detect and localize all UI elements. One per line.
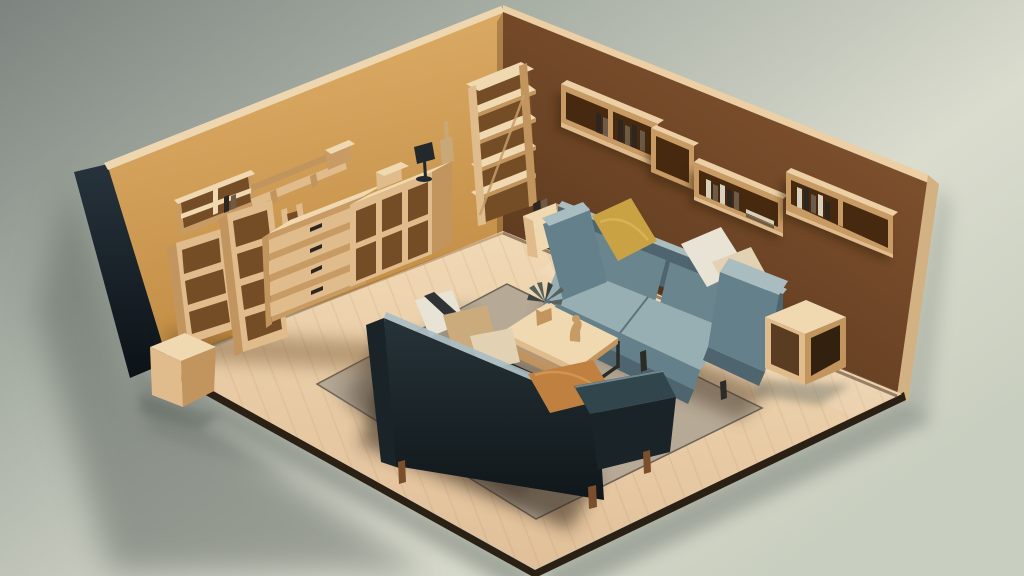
shelf-divider xyxy=(838,199,843,227)
isometric-living-room-render xyxy=(0,0,1024,576)
scene-canvas xyxy=(0,0,1024,576)
book-spine xyxy=(706,179,711,199)
book-spine xyxy=(618,119,623,143)
book-spine xyxy=(632,124,637,149)
sofa-leg xyxy=(720,380,727,400)
lamp-base xyxy=(416,176,432,182)
shelf-divider xyxy=(608,107,613,139)
cube-unit-side xyxy=(432,161,452,254)
book-spine xyxy=(804,187,809,211)
book-spine xyxy=(734,191,739,211)
book-spine xyxy=(596,112,601,134)
book-spine xyxy=(811,194,816,214)
book-spine xyxy=(231,194,236,210)
book-spine xyxy=(640,130,645,152)
book-spine xyxy=(797,187,802,209)
sofa-leg xyxy=(398,460,406,484)
book-spine xyxy=(713,184,718,202)
sofa-leg xyxy=(640,350,647,372)
book-spine xyxy=(720,184,725,205)
book-spine xyxy=(818,194,823,217)
book-spine xyxy=(825,201,830,220)
book-spine xyxy=(625,125,630,146)
book-spine xyxy=(603,117,608,137)
sofa-leg xyxy=(588,485,597,509)
ladder-shelf xyxy=(466,62,537,226)
book-spine xyxy=(727,189,732,208)
cube-side-table xyxy=(755,300,850,405)
shelf-divider xyxy=(213,184,218,215)
cardboard-box xyxy=(140,333,220,430)
sofa-leg xyxy=(643,450,651,474)
figurine-head xyxy=(572,315,580,323)
book-spine xyxy=(224,195,229,213)
